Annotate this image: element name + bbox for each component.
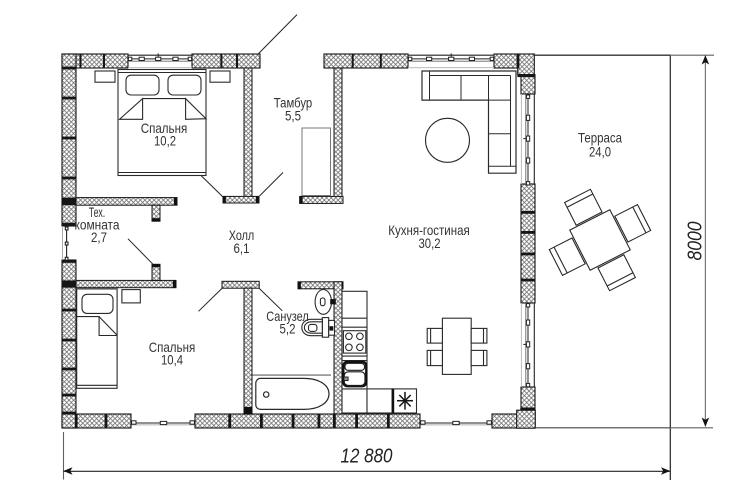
svg-text:24,0: 24,0 [589, 144, 611, 160]
svg-text:12 880: 12 880 [341, 445, 393, 468]
svg-text:5,5: 5,5 [285, 108, 301, 124]
svg-text:6,1: 6,1 [234, 240, 250, 256]
svg-text:8000: 8000 [684, 221, 707, 261]
svg-text:10,4: 10,4 [161, 352, 183, 368]
svg-text:30,2: 30,2 [419, 235, 441, 251]
svg-text:2,7: 2,7 [91, 229, 107, 245]
svg-text:10,2: 10,2 [154, 133, 176, 149]
svg-text:5,2: 5,2 [280, 321, 296, 337]
